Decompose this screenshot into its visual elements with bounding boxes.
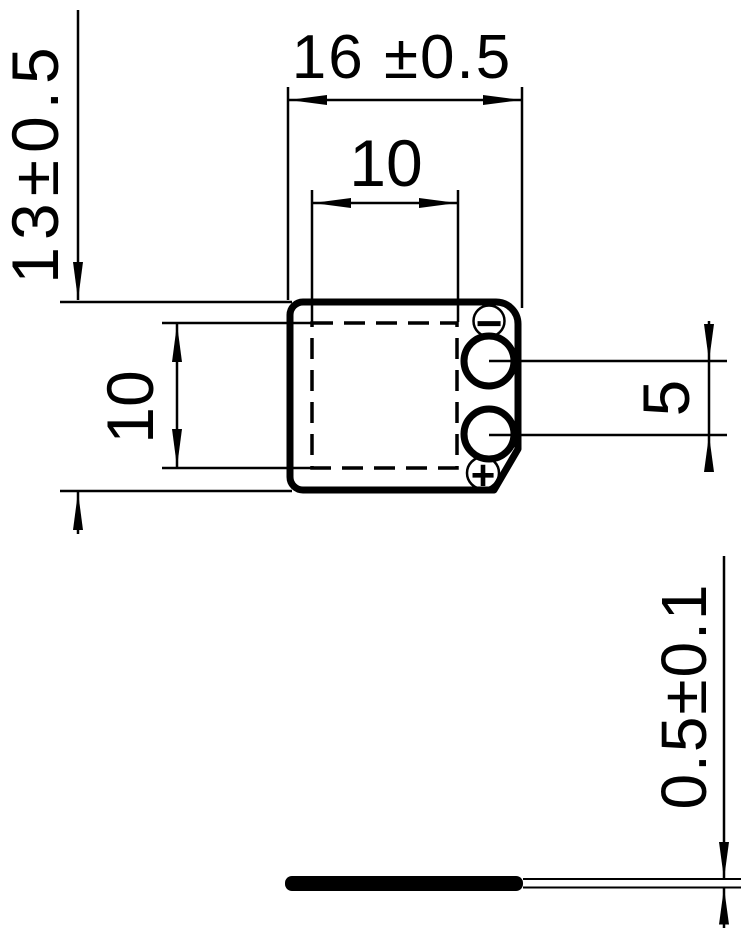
drawing-canvas: − + 16 ±0.5 10 xyxy=(0,0,750,946)
arrowhead-up-icon xyxy=(719,888,729,925)
side-view-body xyxy=(285,876,523,891)
arrowhead-up-icon xyxy=(73,492,83,530)
dim-body-height: 13±0.5 xyxy=(0,10,292,534)
dim-inner-width: 10 xyxy=(312,126,458,322)
arrowhead-right-icon xyxy=(419,198,457,208)
piezo-element-dashed-outline xyxy=(312,323,457,468)
dim-inner-height-label: 10 xyxy=(93,370,167,443)
arrowhead-down-icon xyxy=(704,324,714,361)
arrowhead-left-icon xyxy=(313,198,351,208)
dim-pad-spacing-label: 5 xyxy=(629,380,703,417)
arrowhead-down-icon xyxy=(719,842,729,879)
arrowhead-up-icon xyxy=(172,324,182,362)
dim-body-height-label: 13±0.5 xyxy=(0,40,72,283)
dim-body-width-label: 16 ±0.5 xyxy=(292,23,512,92)
arrowhead-up-icon xyxy=(704,435,714,472)
arrowhead-left-icon xyxy=(289,95,327,105)
negative-terminal-label: − xyxy=(476,297,503,349)
dim-thickness-label: 0.5±0.1 xyxy=(648,582,720,809)
arrowhead-down-icon xyxy=(172,429,182,467)
dim-inner-width-label: 10 xyxy=(349,126,422,200)
side-view xyxy=(285,876,741,891)
dim-thickness: 0.5±0.1 xyxy=(648,556,729,928)
technical-drawing-page: − + 16 ±0.5 10 xyxy=(0,0,750,946)
arrowhead-down-icon xyxy=(73,262,83,300)
dim-inner-height: 10 xyxy=(93,323,311,468)
positive-terminal-label: + xyxy=(471,452,496,499)
top-view: − + xyxy=(290,297,518,499)
arrowhead-right-icon xyxy=(483,95,521,105)
dim-pad-spacing: 5 xyxy=(489,321,727,472)
